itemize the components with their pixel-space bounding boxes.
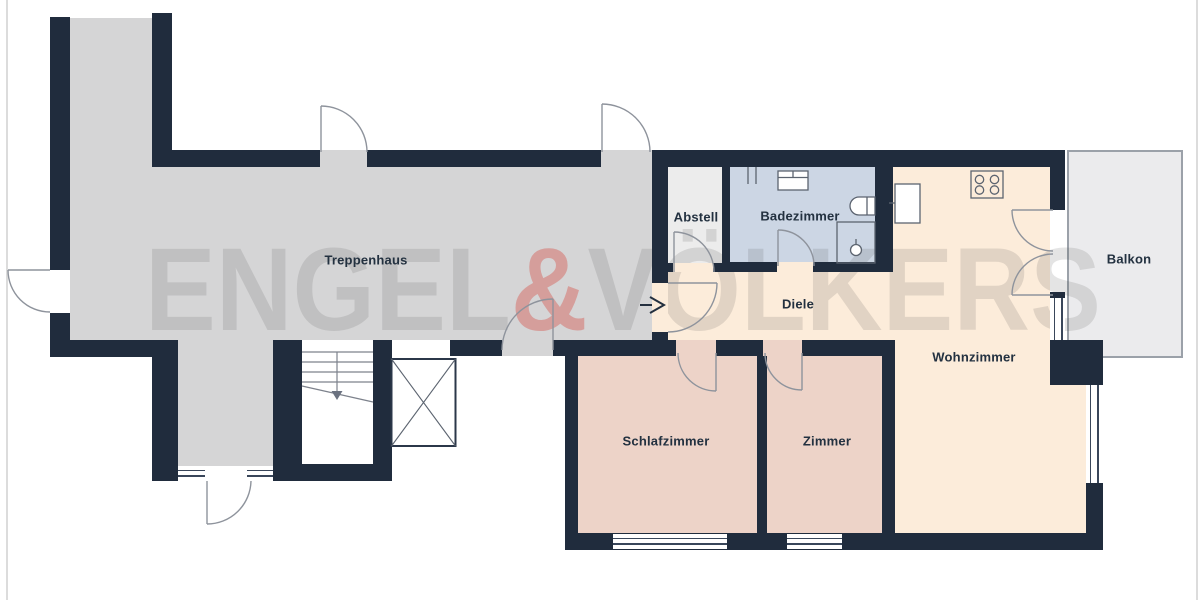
door-swing-top-left <box>321 106 367 152</box>
badezimmer-door <box>778 230 814 266</box>
apartment-entrance-door <box>668 283 717 332</box>
refrigerator-icon <box>889 184 920 223</box>
room-label-zimmer: Zimmer <box>803 434 851 449</box>
toilet-icon <box>850 197 875 215</box>
floor-plan: ENGEL&VÖLKERS <box>0 0 1200 600</box>
elevator-icon <box>392 359 456 446</box>
door-swing-stairwell-bottom <box>502 299 553 350</box>
abstell-door <box>674 232 714 272</box>
stove-icon <box>971 171 1003 198</box>
entrance-arrow-icon <box>640 297 664 313</box>
building-entrance-door <box>207 481 251 524</box>
room-label-schlafzimmer: Schlafzimmer <box>623 434 710 449</box>
room-label-abstell: Abstell <box>674 210 719 225</box>
room-label-treppenhaus: Treppenhaus <box>324 253 407 268</box>
room-label-diele: Diele <box>782 297 814 312</box>
room-label-badezimmer: Badezimmer <box>760 209 839 224</box>
door-swing-stairwell-left <box>8 270 50 312</box>
staircase-icon <box>302 352 373 402</box>
schlafzimmer-door <box>678 353 716 391</box>
radiator-icon <box>748 167 756 184</box>
washbasin-icon <box>778 171 808 190</box>
door-swing-top-mid <box>602 104 650 152</box>
room-label-wohnzimmer: Wohnzimmer <box>932 350 1015 365</box>
room-label-balkon: Balkon <box>1107 252 1152 267</box>
balcony-french-doors <box>1012 210 1053 295</box>
zimmer-door <box>765 353 802 390</box>
shower-icon <box>837 222 875 263</box>
